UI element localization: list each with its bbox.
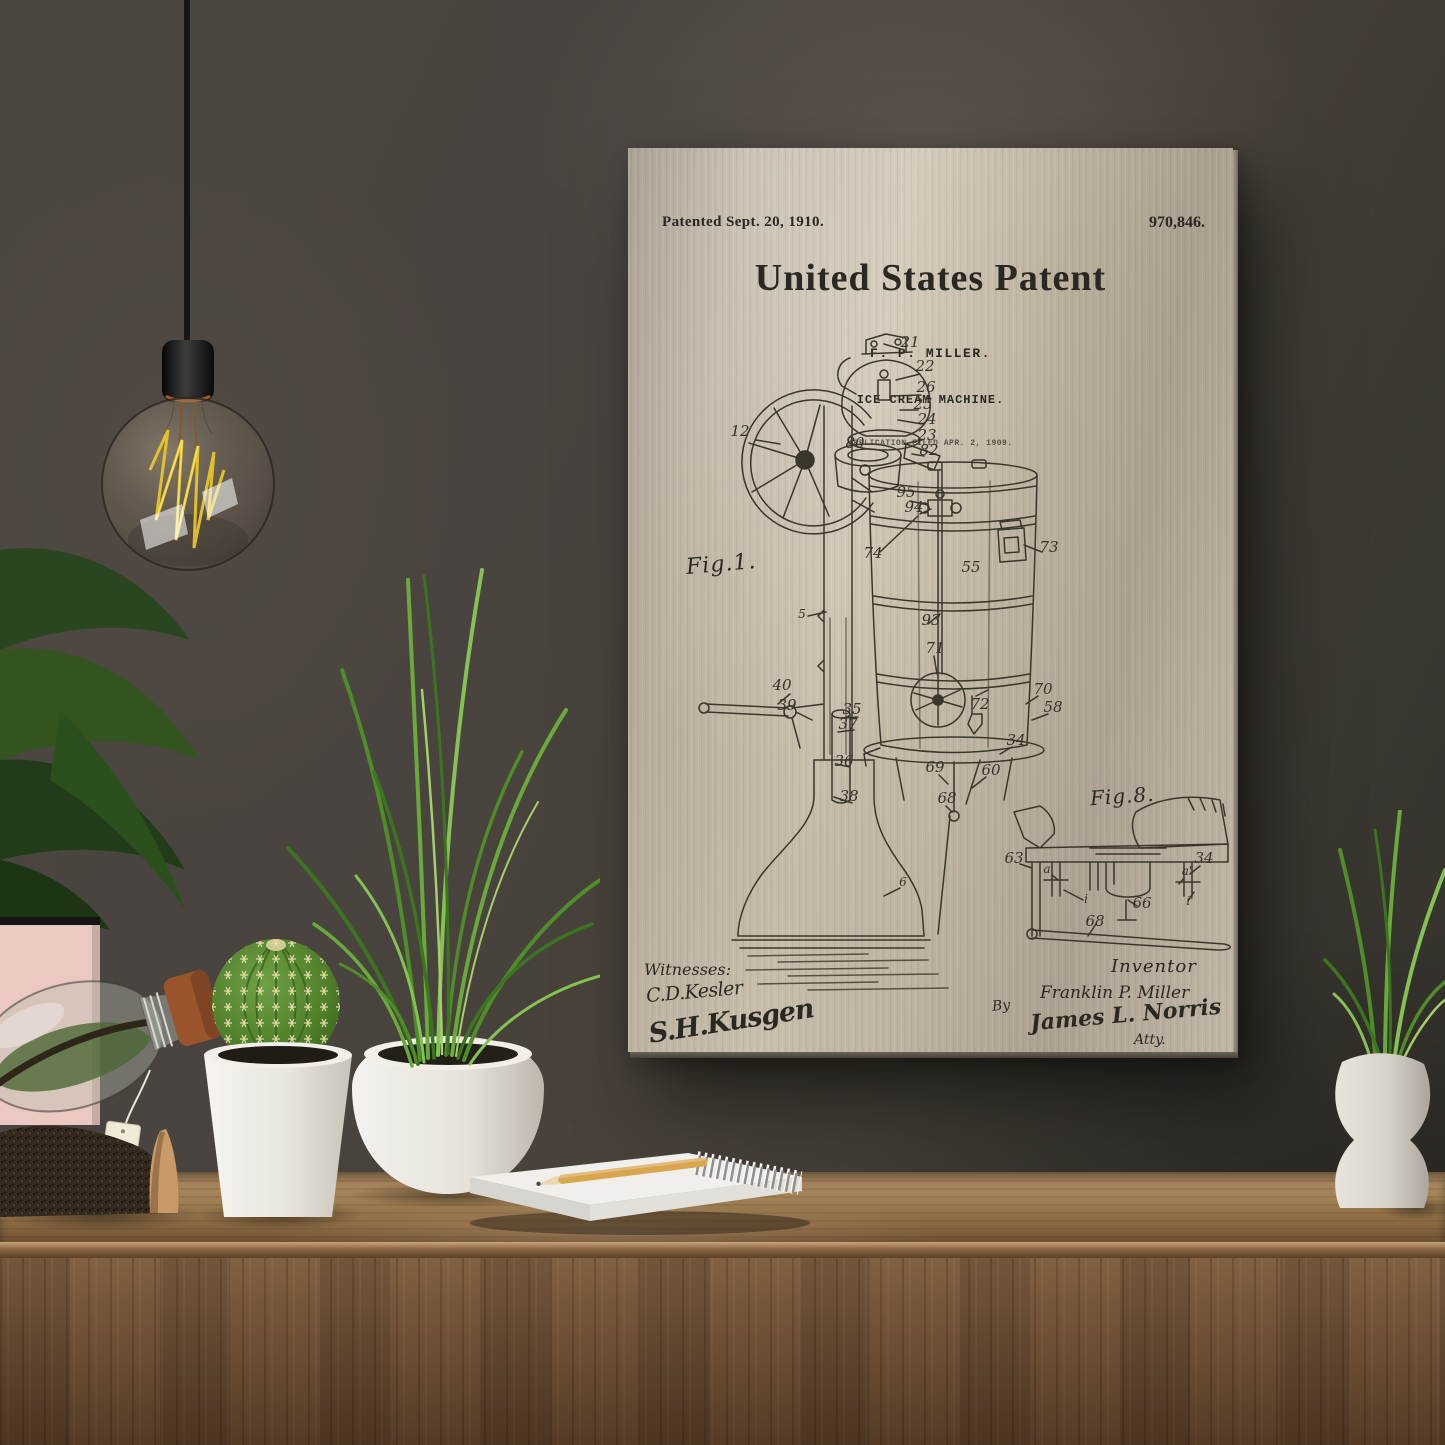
part-label: 12 (730, 422, 749, 440)
part-label: 26 (915, 378, 936, 396)
patent-drawing: 2122262524238212809594747355593714039353… (628, 148, 1233, 1052)
notebook-group (450, 1135, 830, 1245)
part-label: 22 (914, 357, 934, 375)
witnesses-heading: Witnesses: (644, 960, 731, 979)
fig8-label: Fig.8. (1089, 782, 1155, 810)
part-label: 73 (1039, 538, 1058, 556)
part-label-group: 2122262524238212809594747355593714039353… (730, 333, 1213, 930)
part-label: 68 (1085, 912, 1104, 930)
inventor-heading: Inventor (1111, 956, 1197, 977)
part-label: 39 (777, 696, 797, 714)
attorney-title: Atty. (1134, 1032, 1166, 1048)
part-label: 21 (899, 333, 919, 351)
tub-support-ring (864, 737, 1044, 934)
part-label: 80 (845, 434, 865, 452)
part-label: 63 (1004, 849, 1023, 867)
part-label: 72 (970, 695, 989, 713)
part-label: 40 (771, 676, 792, 694)
flywheel (742, 390, 873, 534)
gravel-mound (0, 1126, 165, 1217)
part-label: 66 (1132, 894, 1152, 912)
part-label: 94 (904, 498, 923, 516)
part-label: 34 (1194, 849, 1213, 867)
part-label: 37 (838, 715, 858, 733)
grass-blades (288, 570, 600, 1066)
part-label: 36 (834, 752, 854, 770)
part-label: 82 (919, 441, 938, 459)
pendant-lamp (90, 0, 290, 590)
desk-front-panel (0, 1258, 1445, 1445)
patent-print: Patented Sept. 20, 1910. 970,846. United… (628, 148, 1233, 1052)
part-label: 74 (863, 544, 882, 562)
part-label: a (1043, 862, 1050, 876)
part-label: 68 (937, 789, 956, 807)
part-label: 34 (1006, 731, 1025, 749)
part-label: i (1084, 892, 1088, 906)
grass-blades (1325, 810, 1445, 1058)
right-vase-plant (1320, 810, 1445, 1230)
leaf (0, 548, 190, 650)
part-label: 55 (961, 558, 980, 576)
part-label: 60 (981, 761, 1001, 779)
part-label: 71 (925, 639, 944, 657)
part-label: a' (1182, 864, 1192, 878)
by-label: By (991, 997, 1011, 1015)
part-label: 93 (921, 611, 940, 629)
hourglass-vase (1335, 1053, 1430, 1208)
room-scene: Patented Sept. 20, 1910. 970,846. United… (0, 0, 1445, 1445)
lever-and-pipe (699, 703, 850, 803)
part-label: 58 (1043, 698, 1062, 716)
lamp-cord (184, 0, 190, 345)
notebook-shadow (470, 1211, 810, 1235)
part-label: 38 (839, 787, 858, 805)
houseplant-leaves (0, 530, 270, 950)
part-label: 5 (798, 607, 806, 621)
grass-plant-bowl (270, 540, 600, 1220)
part-label: 69 (925, 758, 945, 776)
leader-lines (756, 344, 1200, 936)
part-label: 70 (1033, 680, 1053, 698)
leaf (0, 648, 200, 760)
part-label: i' (1186, 894, 1193, 908)
part-label: 6 (899, 875, 907, 889)
lamp-socket (162, 340, 214, 402)
